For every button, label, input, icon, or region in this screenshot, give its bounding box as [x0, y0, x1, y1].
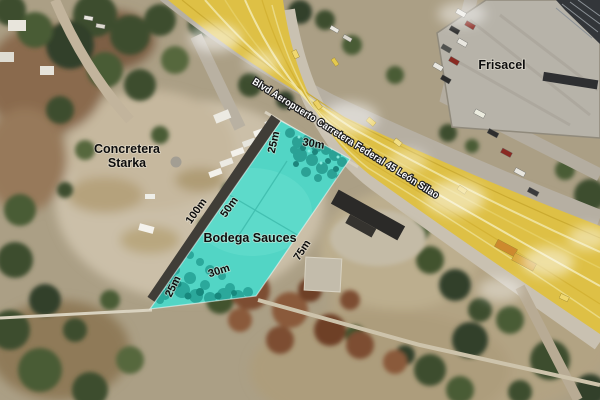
satellite-map: Blvd Aeropuerto Carretera Federal 45 Leó…	[0, 0, 600, 400]
concrete-slab	[304, 257, 342, 292]
satellite-map-canvas: Blvd Aeropuerto Carretera Federal 45 Leó…	[0, 0, 600, 400]
small-building	[40, 66, 54, 75]
frisacel-label: Frisacel	[478, 58, 525, 72]
concretera-label-line1: Concretera	[94, 142, 161, 156]
bodega-sauces-label: Bodega Sauces	[203, 231, 296, 245]
small-building	[8, 20, 26, 31]
concretera-label-line2: Starka	[108, 156, 147, 170]
small-building	[0, 52, 14, 62]
silo	[171, 157, 182, 168]
white-car	[145, 194, 155, 199]
